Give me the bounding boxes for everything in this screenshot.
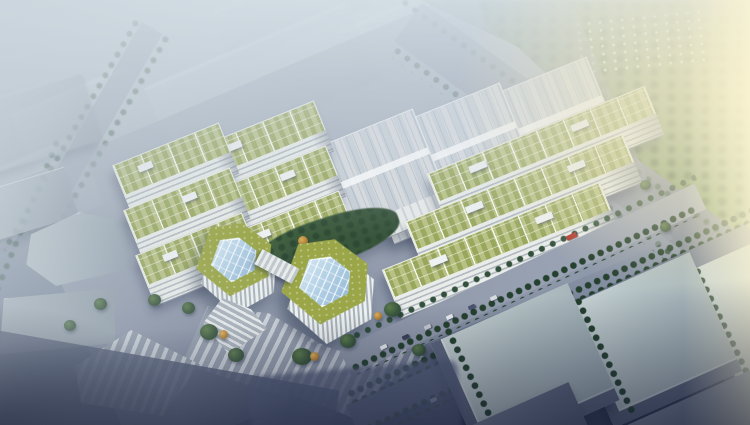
aerial-rendering	[0, 0, 750, 425]
tree	[228, 348, 244, 362]
tree	[660, 222, 671, 232]
autumn-tree	[374, 312, 382, 320]
autumn-tree	[219, 330, 228, 339]
tree	[64, 320, 76, 331]
tree	[148, 294, 161, 306]
tree	[94, 298, 107, 310]
tree	[292, 348, 312, 365]
hex-building	[276, 237, 374, 333]
tree	[640, 180, 651, 190]
autumn-tree	[310, 352, 319, 361]
tree	[200, 324, 218, 340]
tree	[340, 334, 356, 348]
tree	[384, 302, 401, 317]
tree	[182, 302, 195, 314]
